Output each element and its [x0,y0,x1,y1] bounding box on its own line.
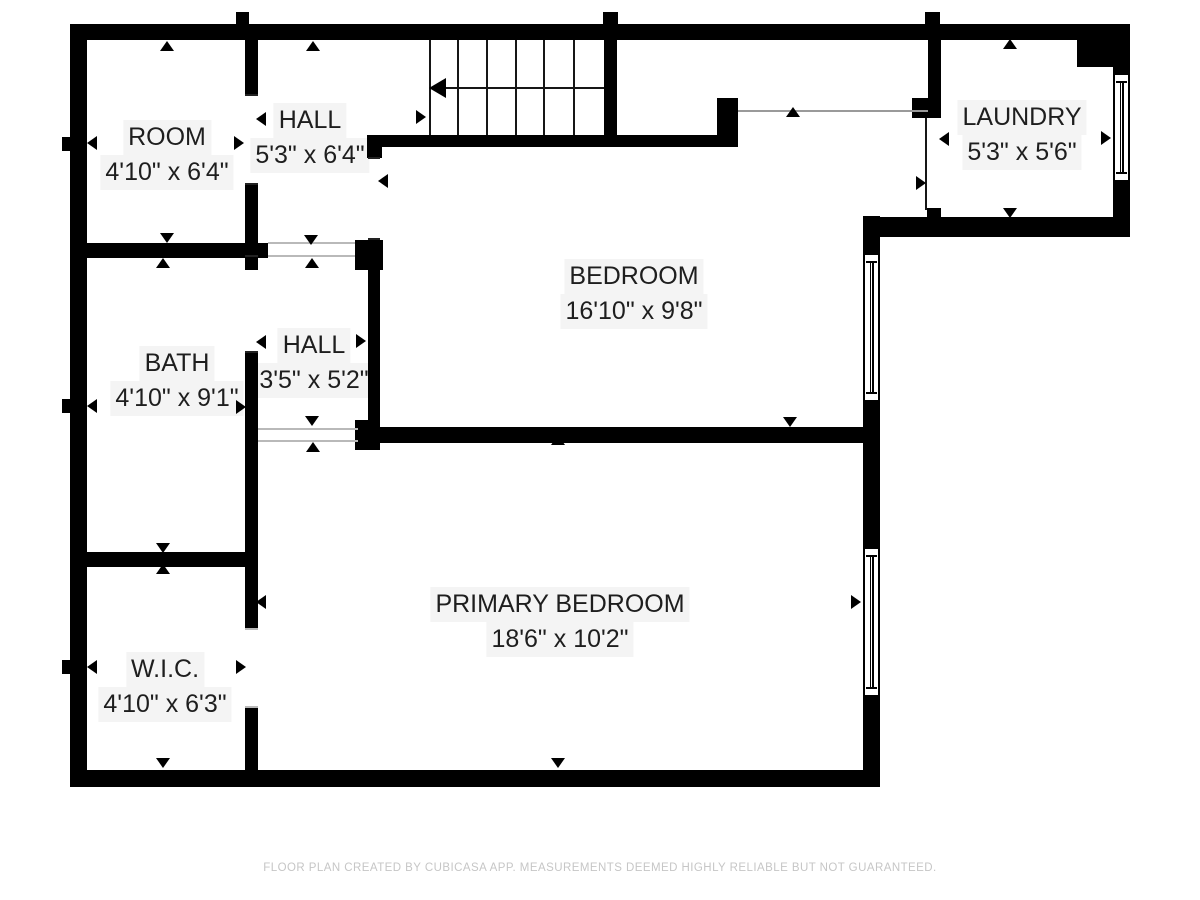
window [863,547,880,697]
measure-arrow-right [1101,131,1111,145]
stairs-direction-line [438,87,604,89]
measure-arrow-left [87,136,97,150]
room-label-hall-upper: HALL5'3" x 6'4" [250,103,369,173]
wall-segment [927,208,941,217]
room-name: HALL [274,103,347,138]
measure-arrow-right [916,176,926,190]
window-pane-line [870,557,872,687]
opening-edge-line [258,428,358,430]
measure-arrow-left [378,174,388,188]
measure-arrow-down [551,758,565,768]
room-dimensions: 5'3" x 6'4" [250,138,369,173]
room-dimensions: 5'3" x 5'6" [962,135,1081,170]
window-frame-line [866,392,877,394]
door-jamb-line [245,255,258,257]
measure-arrow-up [786,107,800,117]
room-label-wic: W.I.C.4'10" x 6'3" [98,652,231,722]
room-name: BEDROOM [564,259,703,294]
window-pane-line [872,557,874,687]
room-dimensions: 3'5" x 5'2" [254,363,373,398]
wall-segment [70,770,880,787]
wall-segment [1077,40,1130,67]
wall-segment [236,12,249,24]
wall-segment [355,420,380,450]
measure-arrow-right [234,136,244,150]
measure-arrow-right [356,334,366,348]
window [1113,73,1130,182]
measure-arrow-right [236,400,246,414]
footer-disclaimer: FLOOR PLAN CREATED BY CUBICASA APP. MEAS… [0,862,1200,874]
room-label-room: ROOM4'10" x 6'4" [100,120,233,190]
wall-segment [603,12,618,24]
room-dimensions: 4'10" x 9'1" [110,381,243,416]
measure-arrow-right [416,110,426,124]
wall-segment [863,217,1130,237]
measure-arrow-right [236,660,246,674]
measure-arrow-up [551,435,565,445]
door-jamb-line [368,157,380,159]
wall-segment [62,137,70,151]
room-name: HALL [278,328,351,363]
wall-segment [912,98,941,118]
measure-arrow-up [305,258,319,268]
measure-arrow-down [156,543,170,553]
measure-arrow-down [160,233,174,243]
measure-arrow-left [87,399,97,413]
wall-segment [62,399,70,413]
wall-segment [70,24,87,787]
measure-arrow-left [256,335,266,349]
wall-segment [245,708,258,787]
room-name: PRIMARY BEDROOM [430,587,689,622]
measure-arrow-down [305,416,319,426]
door-jamb-line [925,118,927,210]
room-name: W.I.C. [126,652,204,687]
wall-segment [358,427,863,443]
room-label-primary-bedroom: PRIMARY BEDROOM18'6" x 10'2" [430,587,689,657]
room-name: ROOM [123,120,211,155]
wall-segment [368,240,380,427]
window-frame-line [866,687,877,689]
measure-arrow-left [256,112,266,126]
door-jamb-line [245,94,258,96]
door-jamb-line [245,183,258,185]
wall-segment [367,135,717,147]
measure-arrow-up [160,41,174,51]
measure-arrow-down [156,758,170,768]
room-label-bedroom: BEDROOM16'10" x 9'8" [560,259,707,329]
wall-segment [245,353,258,567]
room-name: LAUNDRY [957,100,1086,135]
wall-segment [70,24,1130,40]
stairs-direction-arrow [429,78,446,98]
room-dimensions: 4'10" x 6'3" [98,687,231,722]
window-frame-line [1116,172,1127,174]
room-dimensions: 16'10" x 9'8" [560,294,707,329]
measure-arrow-up [306,41,320,51]
floor-plan: ROOM4'10" x 6'4"HALL5'3" x 6'4"LAUNDRY5'… [0,0,1200,900]
room-dimensions: 4'10" x 6'4" [100,155,233,190]
opening-edge-line [268,255,355,257]
wall-segment [604,40,617,147]
measure-arrow-up [156,258,170,268]
measure-arrow-down [304,235,318,245]
window-pane-line [1122,83,1124,172]
wall-segment [928,40,941,98]
window-pane-line [872,263,874,392]
measure-arrow-left [256,595,266,609]
window [863,253,880,402]
opening-edge-line [245,628,258,630]
measure-arrow-down [783,417,797,427]
opening-edge-line [738,110,928,112]
room-label-laundry: LAUNDRY5'3" x 5'6" [957,100,1086,170]
wall-segment [62,660,70,674]
measure-arrow-up [306,442,320,452]
door-jamb-line [245,351,258,353]
measure-arrow-down [1003,208,1017,218]
measure-arrow-up [1003,39,1017,49]
wall-segment [717,98,738,147]
measure-arrow-right [851,595,861,609]
wall-segment [245,40,258,95]
measure-arrow-left [87,660,97,674]
door-jamb-line [368,238,380,240]
opening-edge-line [245,706,258,708]
room-name: BATH [140,346,215,381]
window-pane-line [1120,83,1122,172]
room-label-bath: BATH4'10" x 9'1" [110,346,243,416]
measure-arrow-up [156,564,170,574]
wall-segment [70,243,268,258]
window-pane-line [870,263,872,392]
room-dimensions: 18'6" x 10'2" [486,622,633,657]
measure-arrow-left [939,132,949,146]
wall-segment [925,12,940,24]
